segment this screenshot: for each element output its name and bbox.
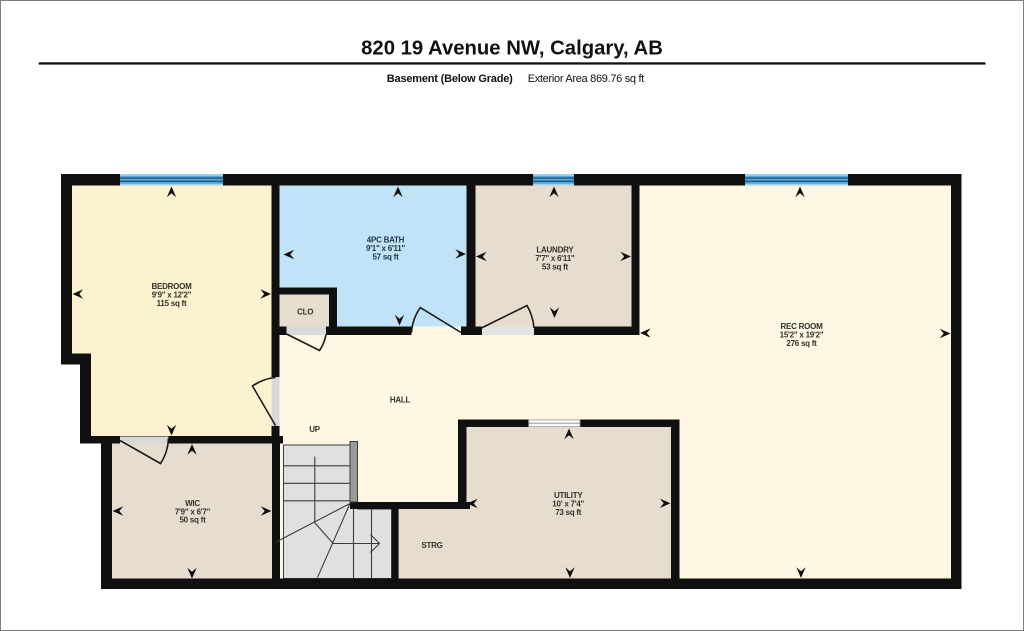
svg-text:HALL: HALL (390, 396, 411, 405)
svg-text:Basement (Below Grade): Basement (Below Grade) (387, 73, 513, 85)
svg-text:53 sq ft: 53 sq ft (542, 263, 569, 272)
svg-text:STRG: STRG (421, 541, 442, 550)
svg-text:UP: UP (309, 425, 321, 434)
svg-text:50 sq ft: 50 sq ft (179, 516, 206, 525)
svg-text:CLO: CLO (297, 308, 313, 317)
svg-text:820 19 Avenue NW, Calgary, AB: 820 19 Avenue NW, Calgary, AB (361, 38, 663, 60)
svg-text:Exterior Area 869.76 sq ft: Exterior Area 869.76 sq ft (528, 73, 645, 85)
svg-text:276 sq ft: 276 sq ft (786, 339, 817, 348)
svg-text:115 sq ft: 115 sq ft (157, 299, 187, 308)
svg-text:57 sq ft: 57 sq ft (372, 252, 399, 261)
svg-text:73 sq ft: 73 sq ft (555, 508, 582, 517)
